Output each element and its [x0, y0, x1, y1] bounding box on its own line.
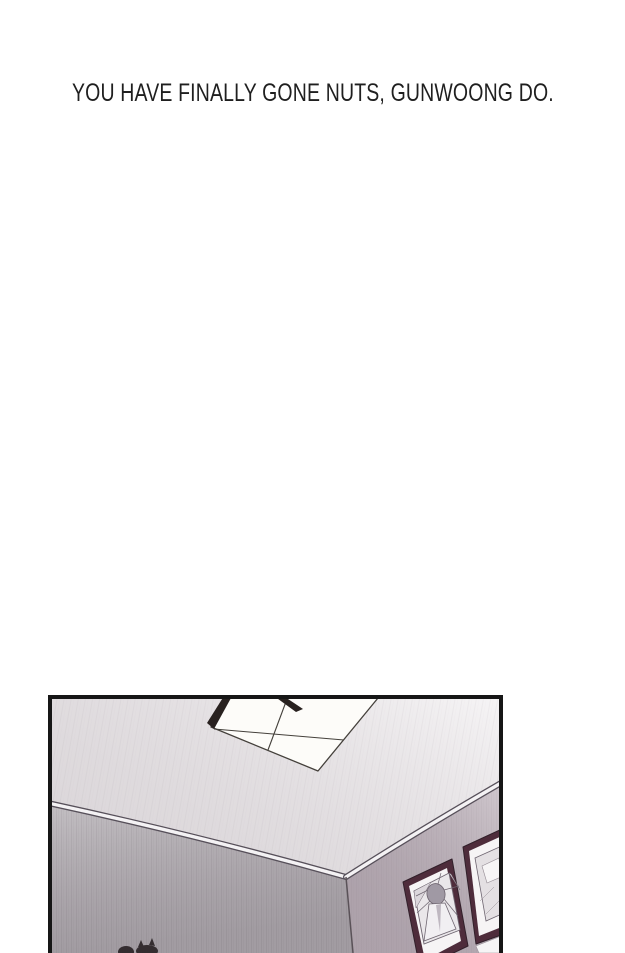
- comic-panel: [0, 0, 625, 953]
- webtoon-page: { "caption": { "text": "YOU HAVE FINALLY…: [0, 0, 625, 953]
